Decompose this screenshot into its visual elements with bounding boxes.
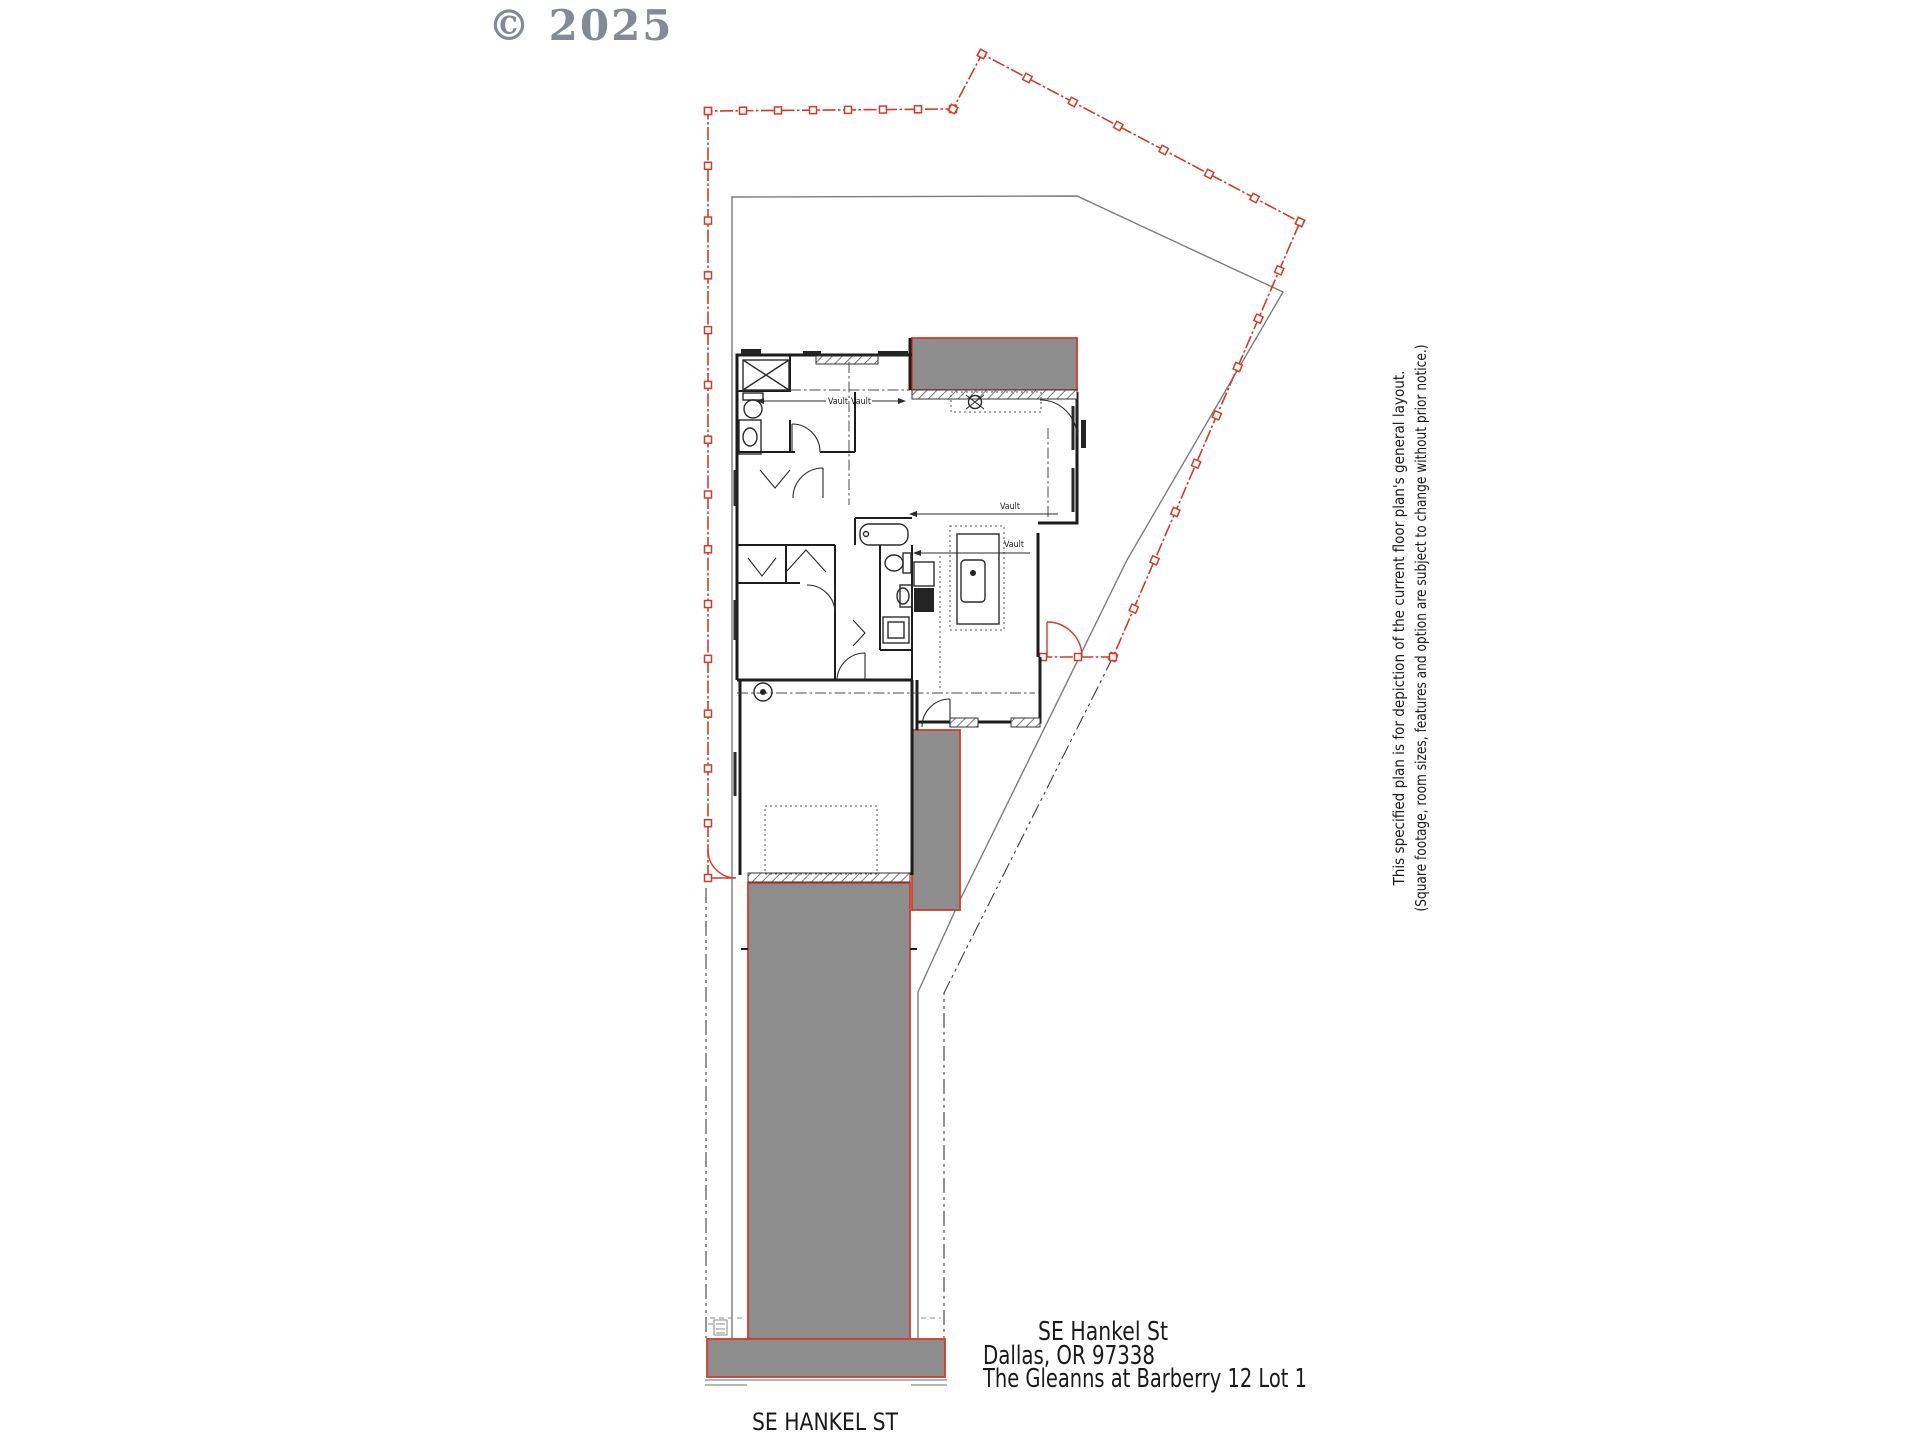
sink (743, 428, 757, 446)
boundary-marker (704, 107, 711, 114)
toilet-tank (743, 393, 763, 400)
boundary-marker (705, 272, 712, 279)
boundary-marker (705, 162, 712, 169)
boundary-marker (1204, 169, 1213, 178)
address-block: SE Hankel St Dallas, OR 97338 The Gleann… (982, 1317, 1307, 1394)
boundary-marker (1171, 507, 1180, 516)
window-wall-patio (912, 390, 1077, 399)
boundary-marker (1110, 654, 1117, 661)
boundary-marker (1212, 411, 1221, 420)
boundary-marker (705, 491, 712, 498)
boundary-marker (1129, 604, 1138, 613)
boundary-marker (1150, 556, 1159, 565)
address-line-3: The Gleanns at Barberry 12 Lot 1 (982, 1364, 1307, 1394)
appliance (914, 562, 934, 586)
utility-symbol (754, 683, 772, 701)
kitchen-laundry (914, 526, 1004, 688)
vault-label: Vault (851, 397, 871, 407)
boundary-marker (705, 381, 712, 388)
closet-bifold-door (748, 558, 776, 576)
window-marks (735, 406, 1073, 796)
appliance (914, 588, 934, 612)
boundary-marker (705, 546, 712, 553)
house-plan: Vault Vault Vault Vault (735, 338, 1086, 949)
boundary-marker (1114, 121, 1123, 130)
bedroom2-door-arc (793, 468, 823, 498)
disclaimer-line-2: (Square footage, room sizes, features an… (1412, 345, 1430, 912)
boundary-marker (705, 820, 712, 827)
window-bottom (950, 718, 978, 727)
boundary-marker (1295, 217, 1304, 226)
boundary-marker (705, 875, 712, 882)
wall-cap (741, 349, 761, 354)
closet-bifold-door (760, 470, 790, 488)
toilet (744, 400, 762, 418)
boundary-marker (1275, 266, 1284, 275)
boundary-marker (1159, 145, 1168, 154)
entry-door-arc-red (1047, 622, 1082, 657)
patio-door-arc (1040, 400, 1077, 437)
bedroom-door-arc (807, 585, 835, 613)
hall-door-arc (792, 424, 820, 452)
wall-cap (878, 351, 908, 356)
hall-bath (860, 524, 912, 643)
window-frame-mark (1081, 420, 1086, 448)
boundary-marker (705, 436, 712, 443)
boundary-marker (1250, 193, 1259, 202)
window-top (816, 356, 878, 364)
vault-label: Vault (1000, 502, 1020, 512)
boundary-marker (977, 49, 986, 58)
street-label: SE HANKEL ST (752, 1408, 898, 1436)
property-boundary (704, 49, 1304, 881)
vault-label: Vault (1004, 540, 1024, 550)
site-plan-page: © 2025 (0, 0, 1920, 1440)
wall-cap (803, 351, 821, 355)
toilet (885, 555, 903, 571)
shower (883, 617, 909, 643)
boundary-marker (1023, 73, 1032, 82)
boundary-marker (1233, 362, 1242, 371)
garage-ceiling-access (765, 806, 877, 874)
boundary-marker (879, 106, 886, 113)
rear-patio (912, 338, 1077, 390)
boundary-marker (1068, 97, 1077, 106)
ensuite-bath (739, 360, 789, 454)
boundary-markers (704, 49, 1304, 881)
boundary-marker (914, 106, 921, 113)
toilet-tank (903, 553, 911, 573)
boundary-marker (705, 217, 712, 224)
garage-door (748, 873, 910, 882)
boundary-marker (705, 710, 712, 717)
kitchen-island (957, 534, 999, 624)
boundary-marker (1075, 654, 1082, 661)
disclaimer-line-1: This specified plan is for depiction of … (1390, 371, 1408, 887)
boundary-marker (705, 655, 712, 662)
driveway (748, 883, 910, 1339)
island-sink (961, 560, 985, 602)
boundary-marker (705, 327, 712, 334)
bathtub (860, 524, 908, 545)
front-porch (912, 730, 960, 910)
site-flatwork (707, 338, 1077, 1377)
window-bottom (1011, 718, 1040, 727)
copyright-watermark: © 2025 (488, 1, 674, 50)
garage-entry-door-arc (837, 653, 865, 680)
boundary-marker (1254, 314, 1263, 323)
survey-note-mark (708, 1320, 727, 1335)
vault-label: Vault (828, 397, 848, 407)
sink (897, 588, 909, 604)
boundary-marker (705, 601, 712, 608)
closet-bifold-door (786, 550, 826, 572)
boundary-marker (705, 765, 712, 772)
island-counter-edge (950, 526, 1004, 630)
driveway-apron (707, 1339, 945, 1377)
faucet (970, 570, 976, 576)
boundary-marker (809, 107, 816, 114)
boundary-marker (739, 107, 746, 114)
street-edge (705, 1380, 947, 1385)
disclaimer-block: This specified plan is for depiction of … (1390, 345, 1430, 912)
boundary-marker (844, 106, 851, 113)
boundary-marker (774, 107, 781, 114)
bath-bifold-door (853, 620, 865, 646)
site-plan-drawing: © 2025 (0, 0, 1920, 1440)
boundary-marker (1192, 459, 1201, 468)
